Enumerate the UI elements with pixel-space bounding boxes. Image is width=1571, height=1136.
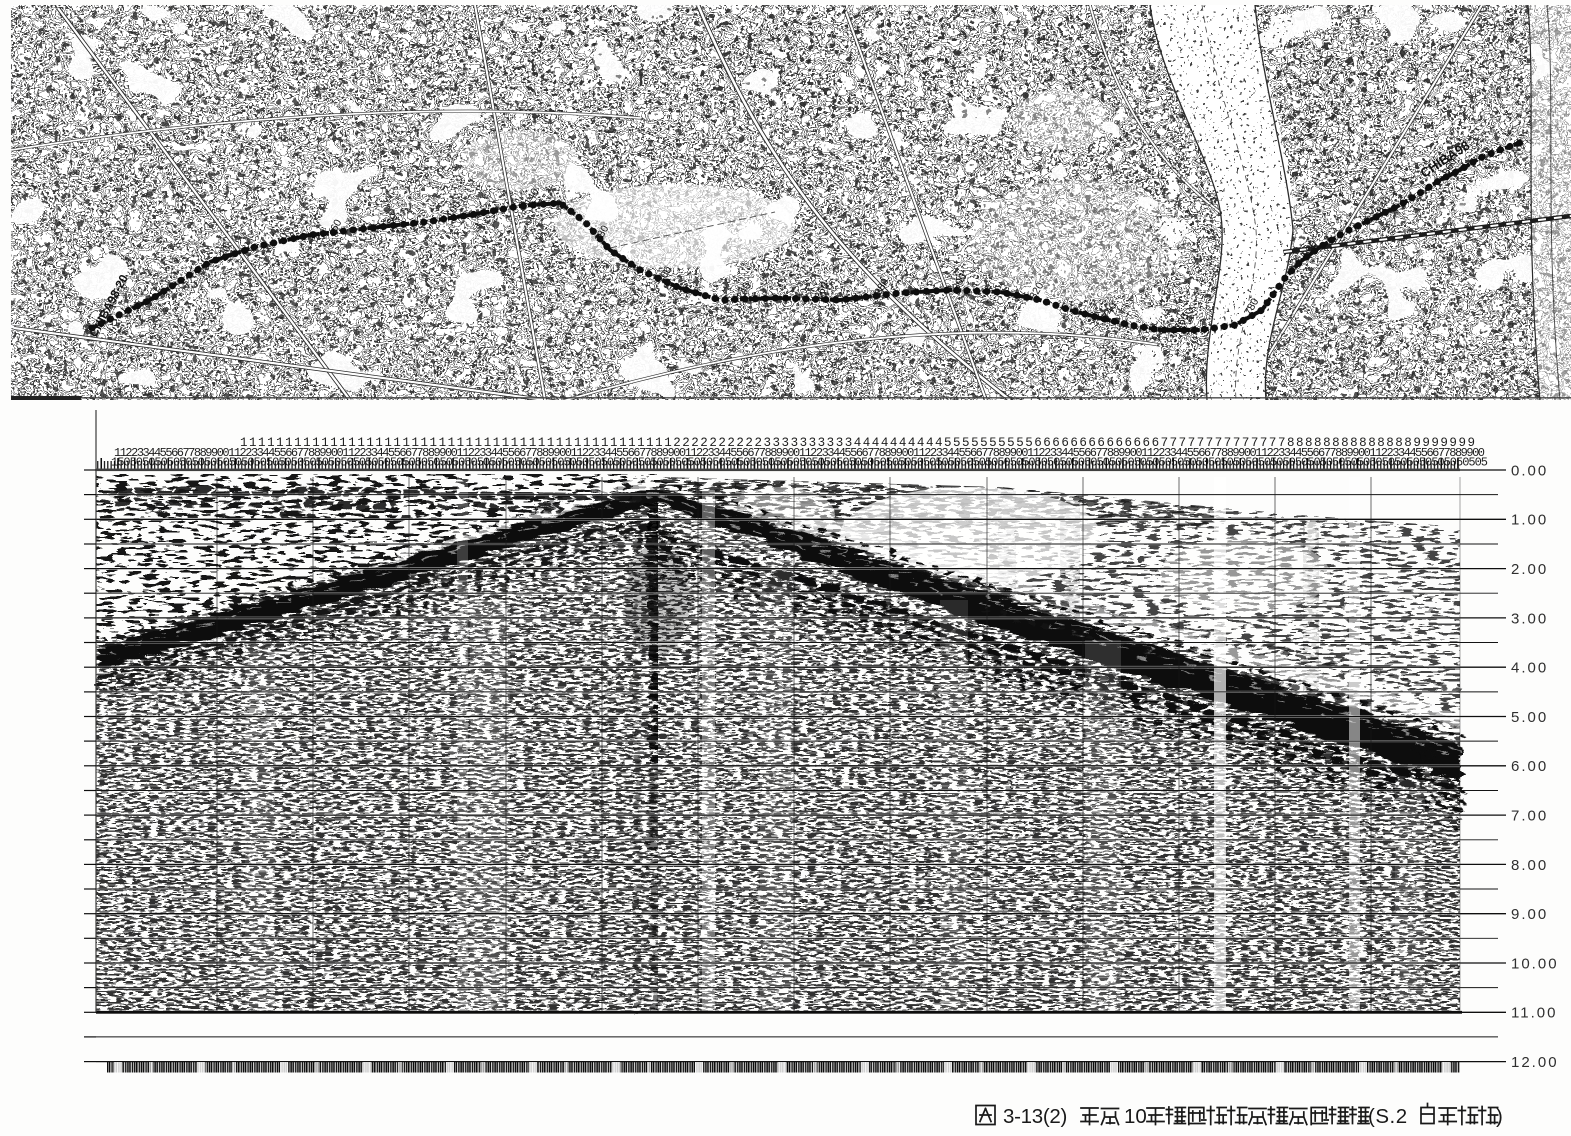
svg-text:9.00: 9.00: [1511, 906, 1548, 923]
svg-text:3-13(2): 3-13(2): [1003, 1105, 1067, 1128]
svg-text:6.00: 6.00: [1511, 758, 1548, 775]
svg-text:4.00: 4.00: [1511, 660, 1548, 677]
svg-text:0.00: 0.00: [1511, 462, 1548, 479]
svg-text:3.00: 3.00: [1511, 610, 1548, 627]
svg-text:): ): [1496, 1105, 1503, 1128]
svg-text:1.00: 1.00: [1511, 512, 1548, 529]
svg-text:10.00: 10.00: [1511, 955, 1559, 972]
svg-text:7.00: 7.00: [1511, 808, 1548, 825]
svg-text:8.00: 8.00: [1511, 857, 1548, 874]
svg-text:2.00: 2.00: [1511, 561, 1548, 578]
svg-text:10: 10: [1124, 1105, 1147, 1128]
svg-text:5.00: 5.00: [1511, 709, 1548, 726]
svg-text:12.00: 12.00: [1511, 1054, 1559, 1071]
svg-text:(S.2: (S.2: [1368, 1105, 1408, 1128]
svg-text:11.00: 11.00: [1511, 1005, 1557, 1022]
